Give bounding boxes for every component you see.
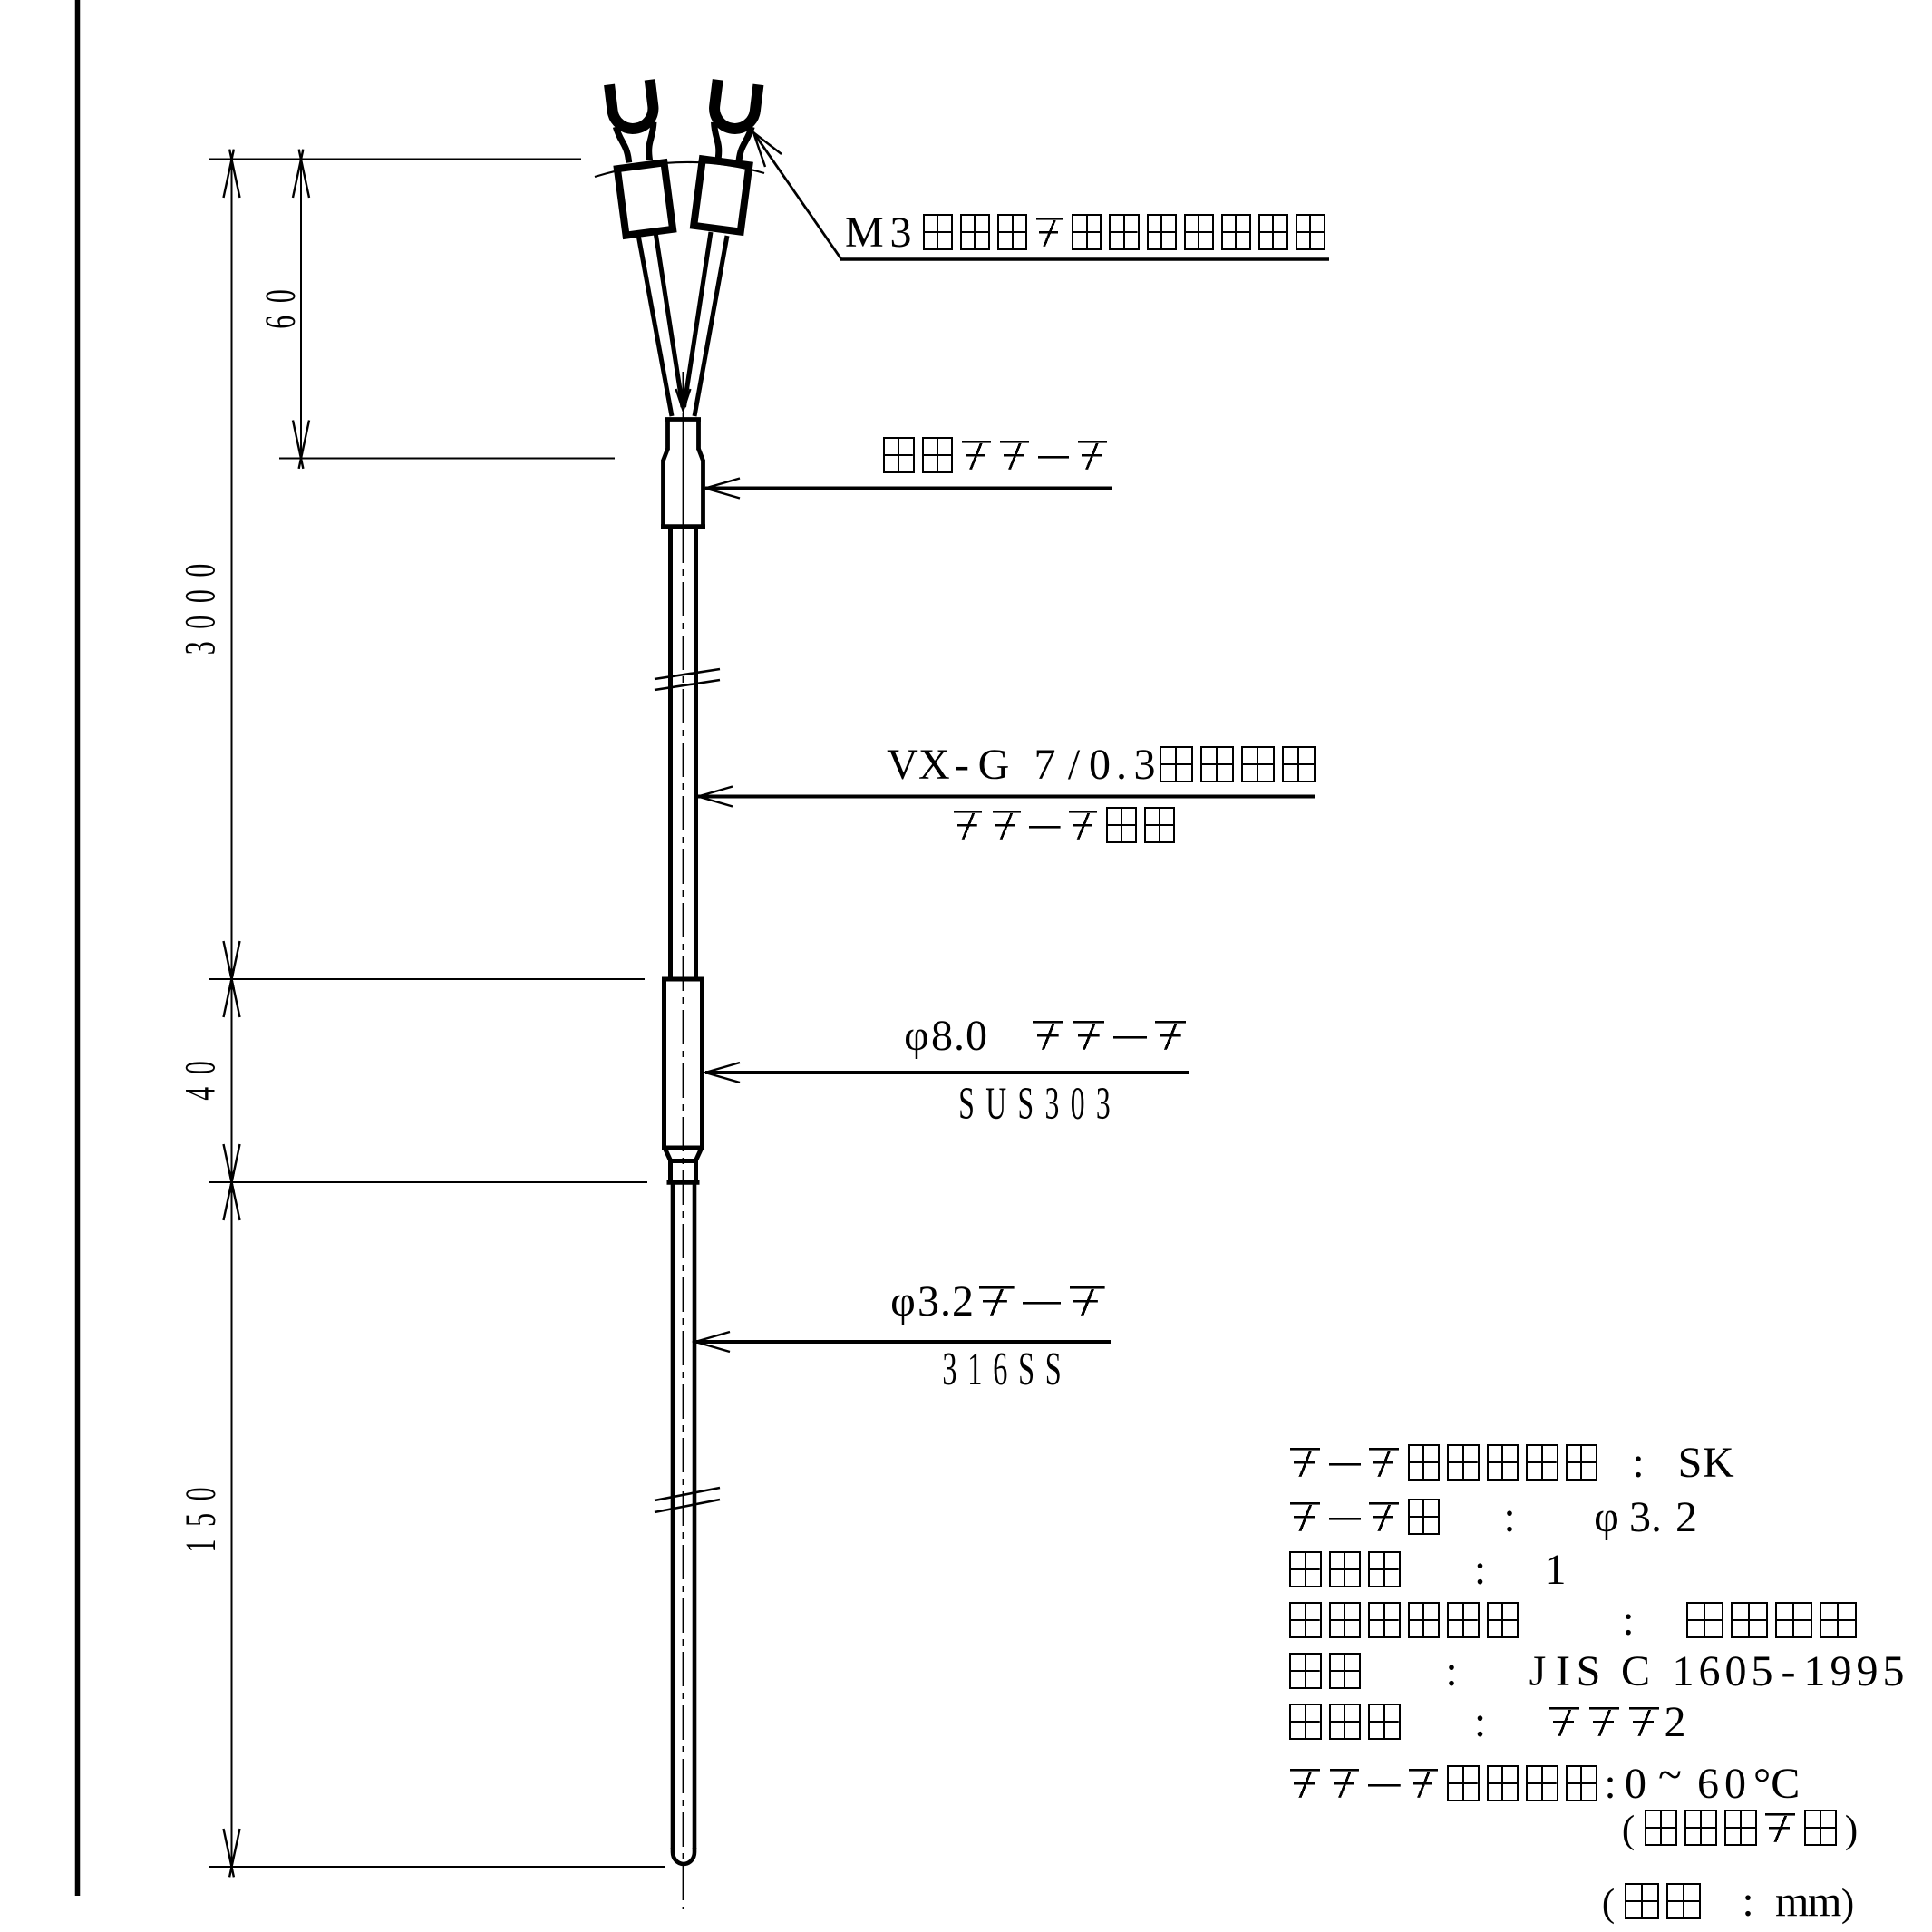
svg-text:40: 40 xyxy=(175,1049,224,1101)
svg-text:60: 60 xyxy=(256,277,305,329)
svg-text:SUS303: SUS303 xyxy=(958,1079,1121,1130)
svg-text:316SS: 316SS xyxy=(942,1343,1072,1395)
svg-text:3000: 3000 xyxy=(175,551,224,655)
svg-text:150: 150 xyxy=(176,1475,225,1553)
